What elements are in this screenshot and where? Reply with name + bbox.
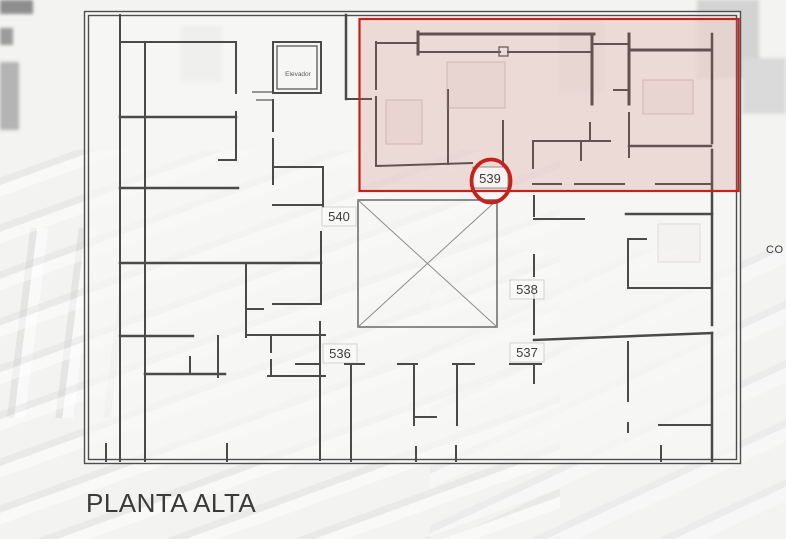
- unit-label-540: 540: [322, 207, 356, 226]
- elevator-label: Elevador: [285, 71, 311, 78]
- unit-label-538: 538: [510, 280, 544, 299]
- floor-plan-image: Elevador 540 538 536: [0, 0, 786, 539]
- unit-537-text: 537: [516, 345, 538, 360]
- unit-label-536: 536: [323, 344, 357, 363]
- unit-540-text: 540: [328, 209, 350, 224]
- unit-label-537: 537: [510, 343, 544, 362]
- unit-536-text: 536: [329, 346, 351, 361]
- right-edge-partial-text: CO: [766, 244, 784, 256]
- unit-539-text: 539: [479, 171, 501, 186]
- plan-title: PLANTA ALTA: [86, 488, 256, 519]
- unit-538-text: 538: [516, 282, 538, 297]
- unit-539-highlight-rect: [360, 19, 739, 191]
- floor-plan-svg: Elevador 540 538 536: [0, 0, 786, 539]
